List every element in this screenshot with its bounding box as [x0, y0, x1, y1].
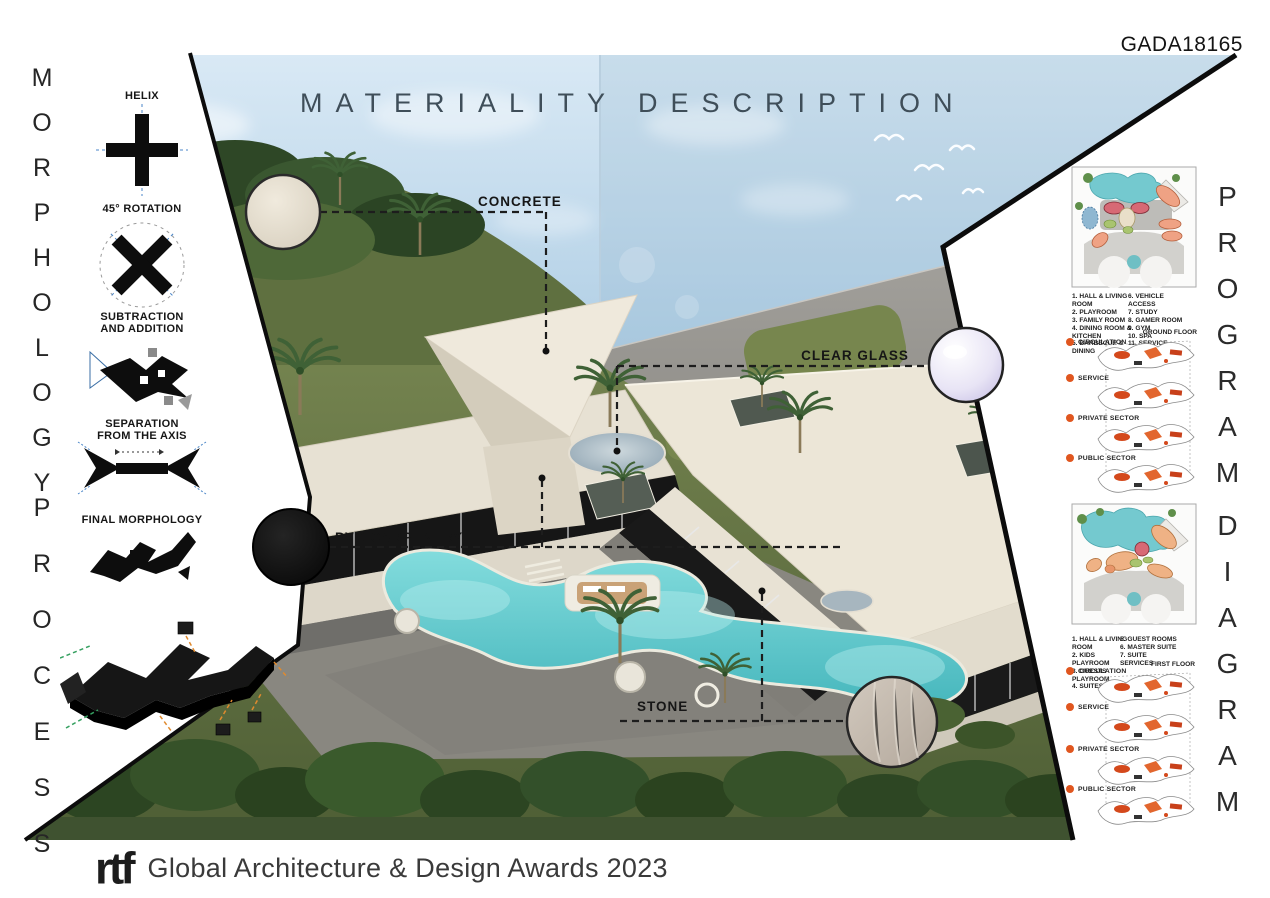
separation-label-line1: SEPARATION [105, 418, 179, 430]
sector-public-ground: PUBLIC SECTOR [1066, 454, 1136, 462]
diagram-title: DIAGRAM [1211, 510, 1243, 832]
stone-swatch [847, 677, 937, 767]
public-sector-dot-icon [1066, 785, 1074, 793]
final-morphology-label: FINAL MORPHOLOGY [82, 514, 203, 526]
morphology-title: MORPHOLOGY [27, 64, 56, 514]
public-sector-dot-icon [1066, 454, 1074, 462]
rotation-icon [80, 203, 204, 327]
sector-public-first: PUBLIC SECTOR [1066, 785, 1136, 793]
private-sector-dot-icon [1066, 745, 1074, 753]
clear-glass-swatch [929, 328, 1003, 402]
private-sector-dot-icon [1066, 414, 1074, 422]
first-floor-plan [1070, 503, 1198, 625]
sector-circulation-ground: CIRCULATION [1066, 338, 1127, 346]
helix-label: HELIX [125, 90, 159, 102]
service-dot-icon [1066, 374, 1074, 382]
subtraction-label-line2: AND ADDITION [100, 323, 183, 335]
sector-circulation-first: CIRCULATION [1066, 667, 1127, 675]
sector-service-ground: SERVICE [1066, 374, 1109, 382]
sector-private-first: PRIVATE SECTOR [1066, 745, 1139, 753]
first-floor-label: FIRST FLOOR [1128, 661, 1195, 668]
circulation-dot-icon [1066, 338, 1074, 346]
board-code: GADA18165 [1121, 33, 1243, 57]
program-title: PROGRAM [1211, 181, 1243, 503]
morphology-3d-icon [60, 622, 288, 735]
morphology-diagrams: HELIX 45° ROTATION SUBTRACTION AND ADDIT… [60, 80, 290, 750]
footer: rtf Global Architecture & Design Awards … [95, 843, 668, 893]
separation-label-line2: FROM THE AXIS [97, 430, 187, 442]
sector-private-ground: PRIVATE SECTOR [1066, 414, 1139, 422]
process-title: PROCESS [27, 494, 56, 886]
sector-service-first: SERVICE [1066, 703, 1109, 711]
subtraction-addition-icon [90, 348, 192, 410]
service-dot-icon [1066, 703, 1074, 711]
award-title: Global Architecture & Design Awards 2023 [148, 853, 668, 884]
rotation-label: 45° ROTATION [102, 203, 181, 215]
ground-floor-label: GROUND FLOOR [1130, 329, 1197, 336]
separation-icon [78, 442, 206, 494]
subtraction-label-line1: SUBTRACTION [100, 311, 183, 323]
ground-floor-plan [1070, 166, 1198, 288]
helix-icon [96, 104, 188, 196]
final-morphology-icon [90, 532, 196, 582]
circulation-dot-icon [1066, 667, 1074, 675]
rtf-logo: rtf [95, 846, 132, 890]
